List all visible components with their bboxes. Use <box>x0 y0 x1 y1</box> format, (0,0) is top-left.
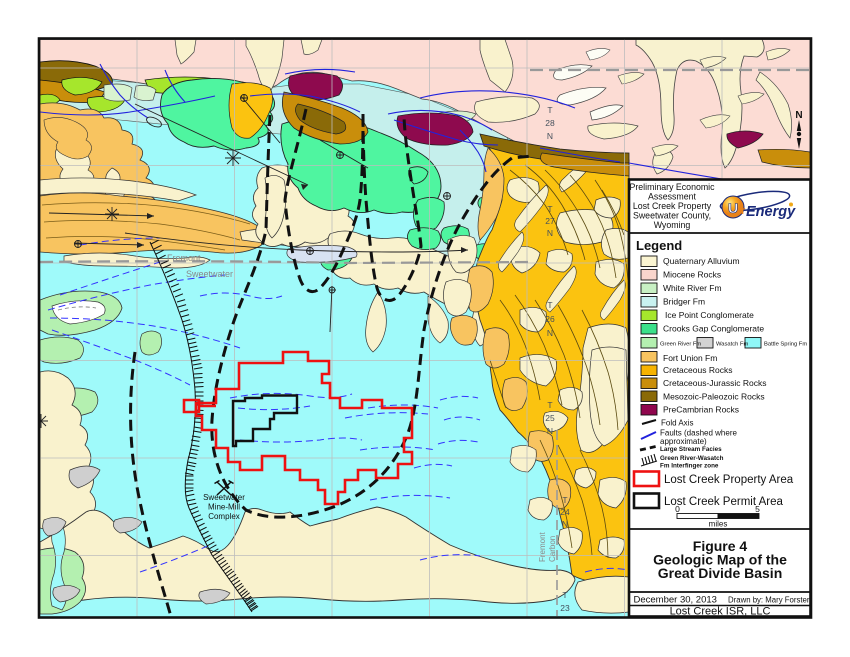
svg-text:Lost Creek Property Area: Lost Creek Property Area <box>664 474 794 486</box>
svg-text:Mesozoic-Paleozoic Rocks: Mesozoic-Paleozoic Rocks <box>663 392 765 402</box>
svg-text:Fort Union Fm: Fort Union Fm <box>663 353 717 363</box>
svg-text:Legend: Legend <box>636 238 682 253</box>
svg-text:Drawn by: Mary Forster: Drawn by: Mary Forster <box>728 596 810 605</box>
svg-text:White River Fm: White River Fm <box>663 283 722 293</box>
svg-text:Sweetwater: Sweetwater <box>186 269 233 279</box>
svg-text:Cretaceous Rocks: Cretaceous Rocks <box>663 365 732 375</box>
svg-text:Quaternary Alluvium: Quaternary Alluvium <box>663 256 740 266</box>
svg-text:T: T <box>547 204 552 214</box>
svg-text:N: N <box>795 110 802 121</box>
svg-text:5: 5 <box>755 504 760 514</box>
svg-text:Energy: Energy <box>746 204 796 220</box>
svg-text:25: 25 <box>545 413 555 423</box>
svg-text:PreCambrian Rocks: PreCambrian Rocks <box>663 405 739 415</box>
svg-text:Crooks Gap Conglomerate: Crooks Gap Conglomerate <box>663 324 764 334</box>
svg-text:Wasatch Fm: Wasatch Fm <box>716 342 748 348</box>
svg-text:Miocene Rocks: Miocene Rocks <box>663 270 721 280</box>
svg-text:N: N <box>547 426 553 436</box>
svg-text:Green River-Wasatch: Green River-Wasatch <box>660 455 724 462</box>
svg-text:Wyoming: Wyoming <box>654 220 691 230</box>
svg-text:miles: miles <box>709 520 728 529</box>
svg-text:N: N <box>547 228 553 238</box>
svg-text:Fremont: Fremont <box>538 531 547 562</box>
svg-text:26: 26 <box>545 314 555 324</box>
svg-text:N: N <box>547 131 553 141</box>
svg-text:U: U <box>728 200 738 216</box>
svg-text:Preliminary Economic: Preliminary Economic <box>629 182 715 192</box>
svg-text:Green River Fm: Green River Fm <box>660 342 701 348</box>
svg-text:Lost Creek Permit Area: Lost Creek Permit Area <box>664 496 783 508</box>
svg-text:T: T <box>547 105 552 115</box>
svg-text:Sweetwater: Sweetwater <box>203 493 245 502</box>
svg-text:27: 27 <box>545 216 555 226</box>
svg-text:T: T <box>547 400 552 410</box>
svg-text:approximate): approximate) <box>660 437 707 446</box>
svg-text:Carbon: Carbon <box>548 536 557 562</box>
svg-text:23: 23 <box>560 603 570 613</box>
svg-text:Bridger Fm: Bridger Fm <box>663 297 705 307</box>
svg-text:0: 0 <box>675 504 680 514</box>
svg-text:Sweetwater County,: Sweetwater County, <box>633 211 711 221</box>
svg-text:December 30, 2013: December 30, 2013 <box>634 595 717 606</box>
svg-text:Lost Creek ISR, LLC: Lost Creek ISR, LLC <box>670 606 771 618</box>
svg-text:28: 28 <box>545 118 555 128</box>
svg-text:T: T <box>562 495 567 505</box>
svg-text:T: T <box>547 300 552 310</box>
svg-text:Cretaceous-Jurassic Rocks: Cretaceous-Jurassic Rocks <box>663 378 766 388</box>
svg-text:24: 24 <box>560 507 570 517</box>
svg-text:Great Divide Basin: Great Divide Basin <box>658 565 783 581</box>
svg-text:Fm Interfinger zone: Fm Interfinger zone <box>660 463 719 470</box>
svg-text:Large Stream Facies: Large Stream Facies <box>660 446 722 453</box>
svg-text:T: T <box>562 590 567 600</box>
svg-text:N: N <box>562 519 568 529</box>
svg-text:Fremont: Fremont <box>167 253 201 263</box>
svg-text:Ice Point Conglomerate: Ice Point Conglomerate <box>665 310 754 320</box>
svg-text:Lost Creek Property: Lost Creek Property <box>633 201 712 211</box>
svg-text:Assessment: Assessment <box>648 192 696 202</box>
svg-text:N: N <box>547 328 553 338</box>
svg-text:Complex: Complex <box>208 512 240 521</box>
svg-text:Fold Axis: Fold Axis <box>661 419 693 428</box>
svg-text:Battle Spring Fm: Battle Spring Fm <box>764 342 807 348</box>
svg-text:Mine-Mill: Mine-Mill <box>208 503 240 512</box>
